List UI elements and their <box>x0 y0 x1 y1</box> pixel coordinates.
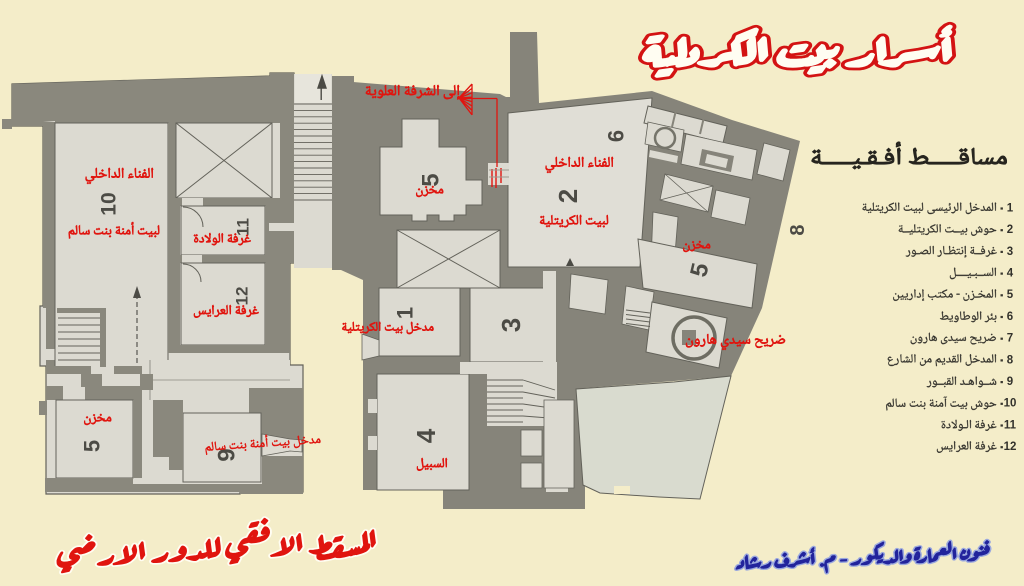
svg-text:5: 5 <box>1007 289 1014 301</box>
svg-text:5: 5 <box>80 440 105 452</box>
svg-text:11: 11 <box>1004 419 1017 431</box>
svg-text:6: 6 <box>604 130 629 142</box>
svg-text:3: 3 <box>1007 246 1013 258</box>
svg-text:10: 10 <box>1004 398 1017 410</box>
svg-text:2: 2 <box>1007 224 1013 236</box>
svg-text:12: 12 <box>233 287 252 306</box>
svg-text:10: 10 <box>98 192 121 215</box>
svg-text:8: 8 <box>1007 354 1014 366</box>
svg-text:5: 5 <box>418 173 445 186</box>
svg-text:8: 8 <box>787 224 809 235</box>
svg-text:3: 3 <box>496 318 526 332</box>
svg-text:11: 11 <box>234 218 253 236</box>
svg-text:4: 4 <box>1007 268 1014 280</box>
svg-text:1: 1 <box>393 307 418 319</box>
svg-text:12: 12 <box>1004 441 1017 453</box>
svg-text:4: 4 <box>411 428 441 443</box>
svg-text:1: 1 <box>1007 202 1014 214</box>
svg-text:7: 7 <box>1007 333 1013 345</box>
svg-text:6: 6 <box>1007 311 1013 323</box>
svg-text:9: 9 <box>1007 376 1013 388</box>
svg-text:9: 9 <box>214 448 241 461</box>
svg-text:2: 2 <box>553 189 583 203</box>
